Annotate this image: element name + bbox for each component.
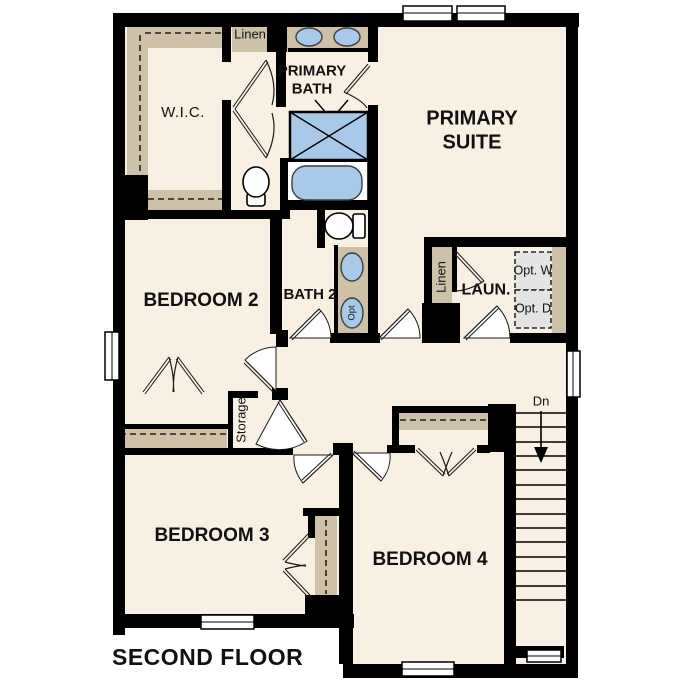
- storage-label: Storage: [233, 397, 248, 443]
- primary-toilet-fixture: [243, 167, 269, 206]
- bath2-sink-fixture: [341, 253, 363, 281]
- floor-plan: W.I.C. Linen PRIMARY BATH PRIMARY SUITE …: [0, 0, 687, 687]
- bath-2-label: BATH 2: [281, 286, 339, 304]
- bedroom-4-label: BEDROOM 4: [372, 549, 487, 571]
- laundry-label: LAUN.: [462, 282, 511, 301]
- vanity-sink-fixture: [296, 28, 322, 46]
- linen-closet-label: Linen: [234, 26, 266, 41]
- optional-sink-label: Opt: [346, 305, 357, 320]
- stairs-down-label: Dn: [533, 393, 550, 408]
- laundry-linen-label: Linen: [433, 261, 448, 293]
- floor-plan-graphics: [0, 0, 687, 687]
- optional-washer-label: Opt. W: [513, 264, 553, 279]
- floor-title: SECOND FLOOR: [112, 644, 303, 671]
- vanity-sink-fixture: [334, 28, 360, 46]
- bedroom-2-label: BEDROOM 2: [143, 290, 258, 312]
- primary-suite-label: PRIMARY SUITE: [407, 107, 537, 154]
- primary-bath-label: PRIMARY BATH: [262, 62, 362, 97]
- wic-label: W.I.C.: [161, 104, 205, 122]
- shower-fixture: [290, 112, 368, 160]
- bath2-toilet-fixture: [325, 213, 365, 239]
- bedroom-3-label: BEDROOM 3: [154, 525, 269, 547]
- optional-dryer-label: Opt. D: [513, 302, 553, 317]
- bathtub-fixture: [292, 166, 362, 200]
